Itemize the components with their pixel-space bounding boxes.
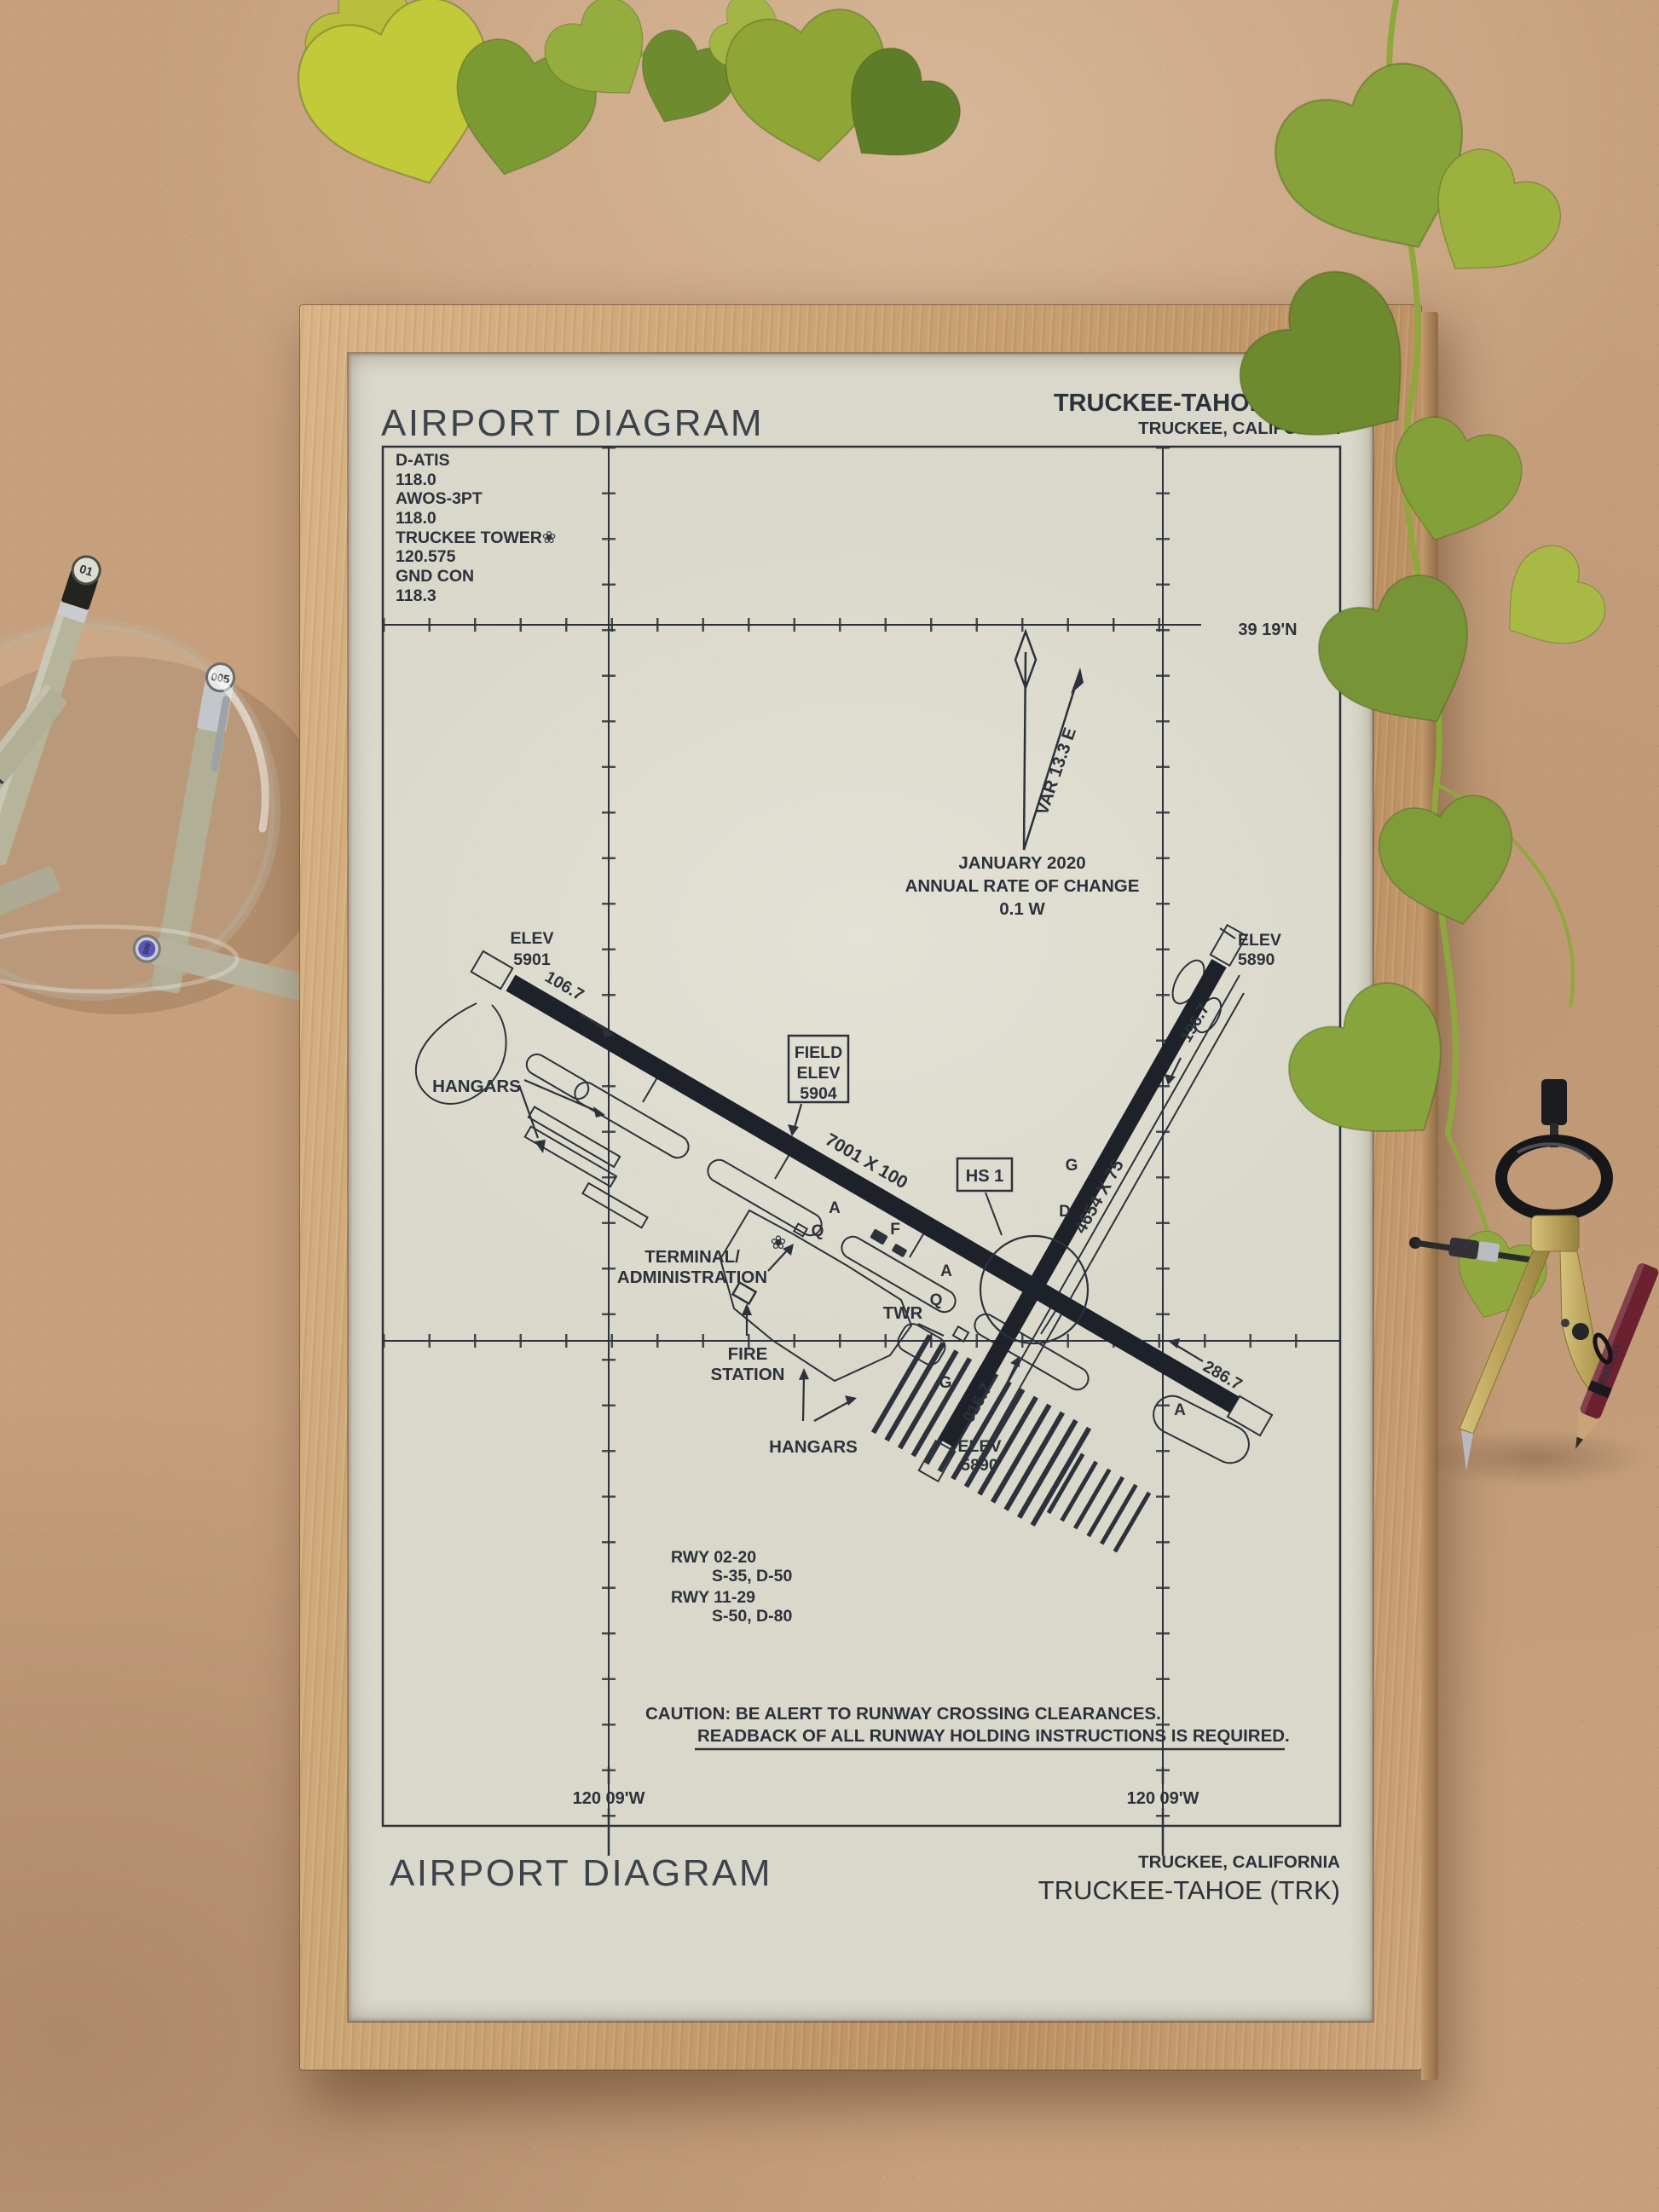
micron-pen — [0, 865, 61, 1000]
photo-scene: 01 005 MICRON 005 — [0, 0, 1659, 2212]
variation-date: JANUARY 2020 — [958, 853, 1085, 873]
freq-label: D-ATIS — [396, 451, 450, 470]
rwy29-arrow — [1177, 1346, 1203, 1361]
footer-title: AIRPORT DIAGRAM — [390, 1852, 772, 1894]
hot-spot-leader — [986, 1193, 1002, 1235]
runway-data-line: RWY 02-20 — [671, 1548, 756, 1567]
footer-airport: TRUCKEE-TAHOE (TRK) — [1038, 1875, 1340, 1905]
elev-value: 5890 — [1238, 950, 1275, 969]
latitude-label: 39 19'N — [1238, 621, 1297, 639]
freq-value: 118.0 — [396, 471, 436, 489]
taxiway-letter: A — [940, 1262, 952, 1280]
terminal-label: TERMINAL/ — [645, 1247, 740, 1267]
needle-point — [1461, 1430, 1473, 1471]
cup-shadow — [0, 656, 332, 1014]
longitude-label: 120 09'W — [573, 1789, 645, 1808]
hangars-south-label: HANGARS — [769, 1437, 858, 1457]
micron-pen: MICRON — [0, 684, 69, 944]
tower-label: TWR — [883, 1303, 923, 1323]
freq-label: GND CON — [396, 567, 474, 586]
compass-leg-holder — [1560, 1251, 1615, 1389]
pen-cap-label: 005 — [142, 942, 152, 956]
pencil-brand-label: GENERAL — [1594, 1340, 1624, 1395]
field-elev-line: ELEV — [797, 1064, 841, 1083]
elev-value: 5890 — [961, 1456, 998, 1475]
field-elev-text: FIELD ELEV 5904 — [795, 1043, 842, 1103]
taxiway-letter: F — [890, 1221, 900, 1239]
taxiway-letter: D — [1059, 1203, 1071, 1221]
hot-spot-label: HS 1 — [966, 1167, 1003, 1186]
freq-label: AWOS-3PT — [396, 489, 483, 508]
glass-base — [0, 927, 237, 991]
airport-name: TRUCKEE-TAHOE (TRK) — [1054, 390, 1340, 417]
frequency-block: D-ATIS 118.0 AWOS-3PT 118.0 TRUCKEE TOWE… — [396, 451, 556, 605]
compass-leg-needle — [1460, 1251, 1550, 1434]
taxiway-letter: Q — [812, 1222, 824, 1240]
wood-frame: AIRPORT DIAGRAM TRUCKEE-TAHOE (TRK) TRUC… — [300, 305, 1421, 2070]
variation-text: ANNUAL RATE OF CHANGE — [905, 876, 1140, 896]
variation-note: JANUARY 2020 ANNUAL RATE OF CHANGE 0.1 W — [905, 853, 1140, 919]
runway-data-block: RWY 02-20 S-35, D-50 RWY 11-29 S-50, D-8… — [671, 1548, 792, 1626]
compass-knob — [1541, 1079, 1567, 1125]
freq-value: 118.3 — [396, 586, 436, 605]
pencil: GENERAL — [1565, 1262, 1659, 1453]
longitude-ticks — [609, 1767, 1163, 1856]
compass-ring — [1501, 1141, 1607, 1216]
chart-border — [383, 447, 1340, 1826]
rwy02-arrow — [1007, 1364, 1016, 1383]
elev-value: 5901 — [513, 950, 551, 969]
ring-highlight — [1517, 1144, 1591, 1159]
pen-cap-label: 01 — [78, 562, 95, 579]
taxiway-letter: G — [1066, 1157, 1078, 1175]
compass-hinge — [1531, 1216, 1579, 1251]
leg-bolt — [1561, 1319, 1569, 1327]
field-elev-line: FIELD — [795, 1043, 842, 1062]
rod-knurl — [1448, 1237, 1500, 1262]
pen-cap-label: 005 — [210, 670, 230, 686]
taxiway-letter: A — [1174, 1401, 1186, 1419]
rubber-band — [1592, 1333, 1614, 1365]
freq-value: 120.575 — [396, 547, 456, 566]
fire-station-label: STATION — [711, 1365, 785, 1384]
rwy20-arrowhead — [1165, 1074, 1176, 1085]
micron-pen: 01 — [0, 552, 104, 866]
runway-data-line: S-35, D-50 — [712, 1567, 792, 1585]
freq-value: 118.0 — [396, 509, 436, 528]
caution-line: READBACK OF ALL RUNWAY HOLDING INSTRUCTI… — [697, 1726, 1290, 1746]
runway-data-line: S-50, D-80 — [712, 1607, 792, 1626]
glass-highlight — [213, 673, 265, 829]
elev-label: ELEV — [511, 929, 554, 948]
fire-station-label: FIRE — [728, 1344, 768, 1364]
field-elev-line: 5904 — [800, 1084, 837, 1103]
diagram-paper: AIRPORT DIAGRAM TRUCKEE-TAHOE (TRK) TRUC… — [349, 354, 1373, 2021]
page-title: AIRPORT DIAGRAM — [381, 402, 764, 444]
caution-line: CAUTION: BE ALERT TO RUNWAY CROSSING CLE… — [645, 1704, 1161, 1724]
graticule — [383, 447, 1340, 1826]
footer-city: TRUCKEE, CALIFORNIA — [1138, 1852, 1340, 1872]
micron-pen: 005 — [151, 661, 237, 994]
taxiway-letter: Q — [930, 1291, 943, 1309]
elev-label: ELEV — [958, 1437, 1002, 1456]
freq-label: TRUCKEE TOWER❀ — [396, 528, 556, 547]
elev-label: ELEV — [1238, 931, 1281, 950]
compass-shadow — [1424, 1429, 1645, 1487]
hangars-s-buildings — [873, 1336, 1149, 1552]
hangars-nw-buildings — [519, 1107, 648, 1228]
runway-data-line: RWY 11-29 — [671, 1588, 755, 1607]
leg-screw — [1572, 1323, 1589, 1340]
magnetic-arrowhead — [1071, 667, 1084, 694]
taxiway-letter: A — [829, 1199, 841, 1217]
longitude-label: 120 09'W — [1127, 1789, 1199, 1808]
hangars-nw-label: HANGARS — [432, 1077, 521, 1096]
taxiway-letter: G — [939, 1374, 952, 1392]
rwy02-elev: ELEV 5890 — [958, 1437, 1002, 1475]
airport-diagram: AIRPORT DIAGRAM TRUCKEE-TAHOE (TRK) TRUC… — [349, 354, 1366, 2012]
airport-city: TRUCKEE, CALIFORNIA — [1138, 419, 1340, 438]
terminal-label: ADMINISTRATION — [617, 1268, 767, 1287]
beacon-icon: ❀ — [771, 1232, 786, 1253]
glass-cup — [0, 624, 275, 996]
variation-rate: 0.1 W — [999, 899, 1045, 919]
field-elev-arrow — [795, 1104, 801, 1128]
pen-barrel-label: MICRON — [0, 774, 6, 832]
knob-stem — [1550, 1123, 1558, 1147]
variation-label: VAR 13.3 E — [1032, 725, 1080, 817]
rwy20-elev: ELEV 5890 — [1238, 931, 1281, 969]
